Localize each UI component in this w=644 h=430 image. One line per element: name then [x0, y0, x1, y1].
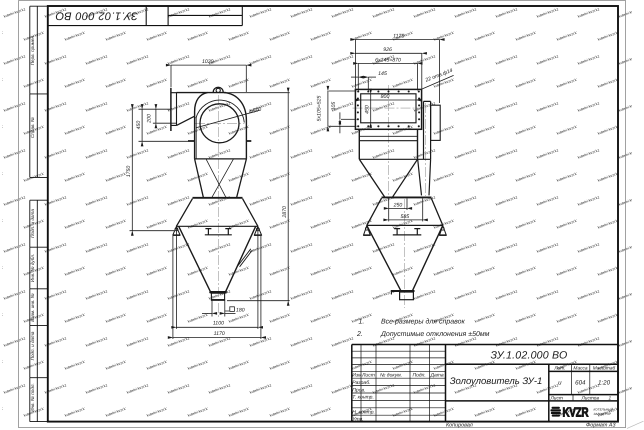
svg-text:и: и: [558, 379, 562, 386]
svg-text:1750: 1750: [126, 166, 132, 178]
svg-text:КОТЕЛЬНЫЙ: КОТЕЛЬНЫЙ: [594, 407, 614, 411]
svg-text:ЗУ.1.02.000 ВО: ЗУ.1.02.000 ВО: [491, 349, 568, 361]
svg-text:Пров.: Пров.: [352, 387, 365, 393]
svg-text:Взам. инв. №: Взам. инв. №: [30, 293, 35, 321]
svg-text:Подп. и дата: Подп. и дата: [30, 331, 35, 360]
svg-text:Лит.: Лит.: [553, 366, 565, 372]
svg-text:2870: 2870: [282, 206, 288, 219]
svg-text:Формат A3: Формат A3: [586, 422, 616, 428]
svg-text:ЗАВОД РЗР: ЗАВОД РЗР: [594, 412, 612, 416]
svg-text:Все размеры для справок: Все размеры для справок: [381, 318, 466, 326]
svg-text:1: 1: [609, 395, 612, 401]
svg-text:Золоуловитель ЗУ-1: Золоуловитель ЗУ-1: [450, 376, 543, 387]
svg-text:604: 604: [575, 379, 586, 386]
svg-text:Т. контр.: Т. контр.: [352, 395, 374, 401]
svg-text:Инв. № дубл.: Инв. № дубл.: [30, 254, 35, 282]
svg-text:450: 450: [365, 105, 371, 114]
svg-text:Справ. №: Справ. №: [30, 117, 35, 138]
svg-text:105: 105: [331, 102, 337, 111]
svg-text:Допустимые отклонения ±50мм: Допустимые отклонения ±50мм: [380, 331, 490, 338]
svg-text:1100: 1100: [213, 321, 224, 327]
svg-text:Утв.: Утв.: [352, 416, 363, 422]
svg-text:Изм: Изм: [352, 372, 362, 378]
svg-text:Листов: Листов: [581, 395, 600, 401]
svg-text:926: 926: [383, 47, 392, 53]
svg-text:450: 450: [136, 121, 142, 130]
svg-text:1.: 1.: [359, 319, 365, 326]
svg-text:180: 180: [236, 307, 245, 313]
svg-text:Лист: Лист: [550, 395, 563, 401]
svg-text:5х105=525: 5х105=525: [317, 95, 323, 121]
svg-text:800: 800: [381, 94, 390, 100]
svg-text:145: 145: [378, 71, 387, 77]
svg-text:Лист: Лист: [361, 372, 375, 378]
svg-text:Масштаб: Масштаб: [593, 366, 616, 372]
svg-text:1030: 1030: [202, 59, 214, 65]
svg-text:Копировал: Копировал: [446, 422, 473, 428]
svg-text:250: 250: [393, 202, 403, 208]
svg-text:585: 585: [400, 214, 409, 220]
svg-text:Подп.: Подп.: [413, 372, 426, 378]
svg-text:Масса: Масса: [573, 366, 588, 372]
svg-text:ЗУ.1.02.000 ВО: ЗУ.1.02.000 ВО: [55, 9, 138, 21]
svg-text:Н. контр.: Н. контр.: [352, 410, 375, 416]
svg-text:6х145=870: 6х145=870: [375, 57, 401, 63]
svg-text:Дата: Дата: [430, 372, 444, 378]
svg-text:Подп. и дата: Подп. и дата: [30, 209, 35, 238]
svg-text:2.: 2.: [356, 331, 363, 338]
svg-text:№ докум.: № докум.: [380, 372, 402, 378]
svg-text:1:20: 1:20: [598, 379, 611, 386]
svg-text:1170: 1170: [214, 331, 225, 337]
svg-text:Перв. примен.: Перв. примен.: [30, 35, 35, 66]
svg-text:Инв. № подл.: Инв. № подл.: [30, 383, 35, 412]
svg-text:1175: 1175: [393, 33, 404, 39]
svg-text:200: 200: [146, 114, 152, 124]
svg-text:KVZR: KVZR: [563, 405, 590, 420]
svg-text:Разраб.: Разраб.: [352, 380, 370, 386]
